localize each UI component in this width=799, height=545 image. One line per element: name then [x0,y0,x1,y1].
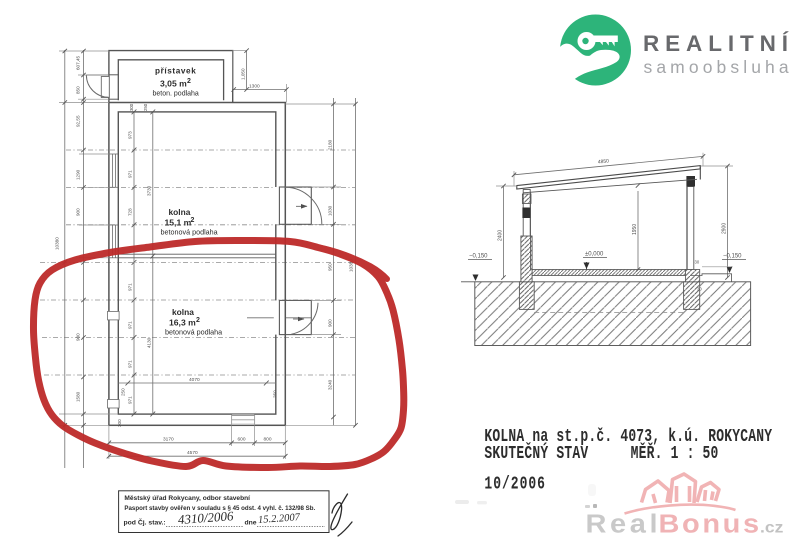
svg-text:±0,000: ±0,000 [585,252,604,258]
svg-text:−0,150: −0,150 [723,254,742,260]
svg-text:607,45: 607,45 [76,56,81,70]
svg-text:dne: dne [245,520,257,527]
svg-text:900: 900 [328,319,333,327]
svg-text:900: 900 [76,333,81,341]
svg-text:MĚŘ. 1 : 50: MĚŘ. 1 : 50 [631,442,719,464]
svg-text:92,55: 92,55 [76,115,81,127]
svg-text:2400: 2400 [498,230,504,241]
svg-text:971: 971 [128,360,133,368]
svg-text:Městský úřad Rokycany, odbor s: Městský úřad Rokycany, odbor stavební [124,495,251,502]
svg-text:beton. podlaha: beton. podlaha [153,91,199,98]
svg-text:3730: 3730 [147,185,152,196]
svg-text:3,05 m: 3,05 m [160,79,187,89]
svg-text:971: 971 [128,170,133,178]
svg-text:4130: 4130 [147,337,152,348]
svg-text:betonová podlaha: betonová podlaha [165,328,222,337]
svg-text:1030: 1030 [328,205,333,216]
svg-text:600: 600 [238,437,246,443]
svg-text:728: 728 [128,208,133,216]
svg-text:10380: 10380 [55,237,60,250]
svg-text:15,1 m: 15,1 m [165,218,192,228]
svg-text:971: 971 [128,283,133,291]
svg-text:1290: 1290 [76,169,81,180]
svg-text:1,050: 1,050 [241,68,246,80]
svg-text:800: 800 [264,437,272,443]
svg-text:pod Čj. stav.:: pod Čj. stav.: [124,518,166,527]
svg-text:971: 971 [128,321,133,329]
svg-text:betonová podlaha: betonová podlaha [161,228,218,237]
svg-text:2900: 2900 [722,223,728,234]
svg-text:4070: 4070 [189,377,200,383]
svg-text:−0,150: −0,150 [469,254,488,260]
svg-text:300: 300 [117,419,122,427]
svg-text:samoobsluha: samoobsluha [644,57,793,77]
svg-text:1300: 1300 [249,84,260,90]
svg-text:přístavek: přístavek [155,67,196,76]
svg-text:16,3 m: 16,3 m [169,318,196,328]
svg-text:Bonus: Bonus [659,509,762,538]
svg-text:2: 2 [196,317,200,324]
svg-text:1950: 1950 [632,224,638,235]
svg-text:1580: 1580 [76,391,81,402]
svg-text:300: 300 [129,103,134,111]
svg-text:971: 971 [128,396,133,404]
svg-text:.cz: .cz [760,518,783,536]
svg-text:2180: 2180 [328,139,333,150]
svg-text:2: 2 [191,217,195,224]
svg-text:3240: 3240 [328,379,333,390]
svg-text:250: 250 [273,390,278,398]
svg-text:10/2006: 10/2006 [484,473,546,494]
svg-text:250: 250 [121,388,126,396]
svg-text:SKUTEČNÝ STAV: SKUTEČNÝ STAV [484,442,588,464]
svg-text:950: 950 [328,263,333,271]
svg-text:850: 850 [76,86,81,94]
svg-text:900: 900 [76,208,81,216]
svg-text:30: 30 [697,287,702,292]
svg-text:2: 2 [187,78,191,85]
svg-text:30: 30 [695,260,700,265]
svg-text:REALITNÍ: REALITNÍ [643,31,794,56]
svg-text:kolna: kolna [169,207,191,217]
svg-text:4570: 4570 [187,450,198,456]
svg-text:Real: Real [586,509,662,538]
svg-text:3170: 3170 [163,437,174,443]
svg-text:kolna: kolna [172,307,194,317]
svg-text:973: 973 [128,131,133,139]
svg-text:4850: 4850 [598,158,610,165]
svg-text:250: 250 [143,103,148,111]
